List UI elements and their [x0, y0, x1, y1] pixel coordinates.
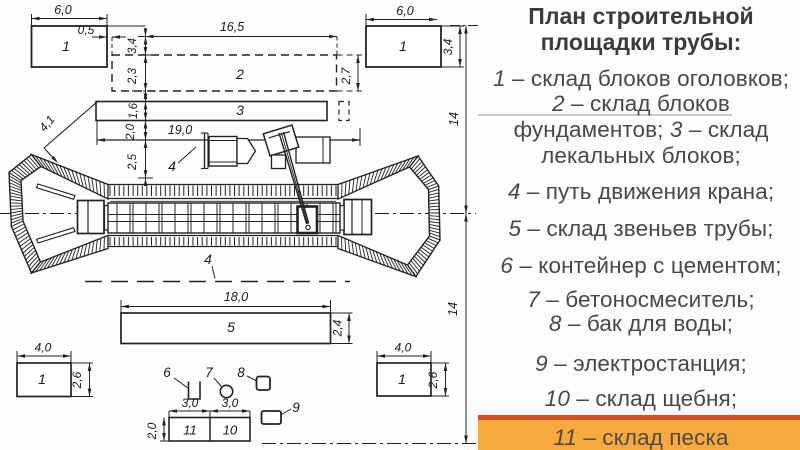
svg-text:1: 1	[398, 371, 406, 387]
svg-text:2: 2	[235, 66, 244, 82]
svg-text:14: 14	[447, 112, 461, 126]
svg-text:2,5: 2,5	[127, 153, 139, 171]
svg-text:6,0: 6,0	[54, 3, 71, 17]
svg-text:4,0: 4,0	[395, 341, 412, 355]
svg-text:1: 1	[399, 38, 407, 54]
svg-text:2,7: 2,7	[339, 66, 353, 85]
svg-text:3,4: 3,4	[441, 38, 455, 55]
svg-text:2,4: 2,4	[331, 319, 345, 337]
svg-text:6,0: 6,0	[396, 4, 413, 18]
svg-text:2,0: 2,0	[125, 123, 137, 141]
svg-text:6: 6	[163, 365, 171, 380]
svg-text:8: 8	[237, 365, 245, 380]
svg-text:2,3: 2,3	[127, 67, 139, 85]
svg-text:1: 1	[38, 371, 46, 387]
svg-text:4: 4	[168, 158, 176, 174]
svg-text:3,0: 3,0	[182, 396, 199, 410]
svg-text:2,6: 2,6	[426, 371, 440, 389]
svg-text:18,0: 18,0	[224, 290, 248, 304]
svg-text:4,0: 4,0	[35, 341, 52, 355]
svg-text:2,6: 2,6	[70, 371, 84, 389]
svg-text:2,0: 2,0	[145, 422, 159, 440]
svg-text:7: 7	[205, 365, 213, 380]
svg-text:5: 5	[227, 319, 235, 335]
svg-text:0,5: 0,5	[78, 23, 95, 37]
svg-text:19,0: 19,0	[168, 123, 192, 137]
svg-text:14: 14	[446, 302, 460, 316]
svg-text:11: 11	[183, 423, 197, 438]
svg-text:3: 3	[236, 102, 244, 118]
svg-text:4: 4	[204, 251, 212, 267]
svg-text:10: 10	[223, 423, 238, 438]
svg-text:1: 1	[62, 38, 70, 54]
svg-text:9: 9	[292, 400, 300, 415]
svg-text:4,1: 4,1	[36, 113, 57, 135]
svg-text:1,6: 1,6	[128, 102, 140, 119]
svg-text:3,4: 3,4	[127, 38, 139, 54]
svg-text:3,0: 3,0	[222, 396, 239, 410]
svg-text:16,5: 16,5	[220, 20, 244, 34]
